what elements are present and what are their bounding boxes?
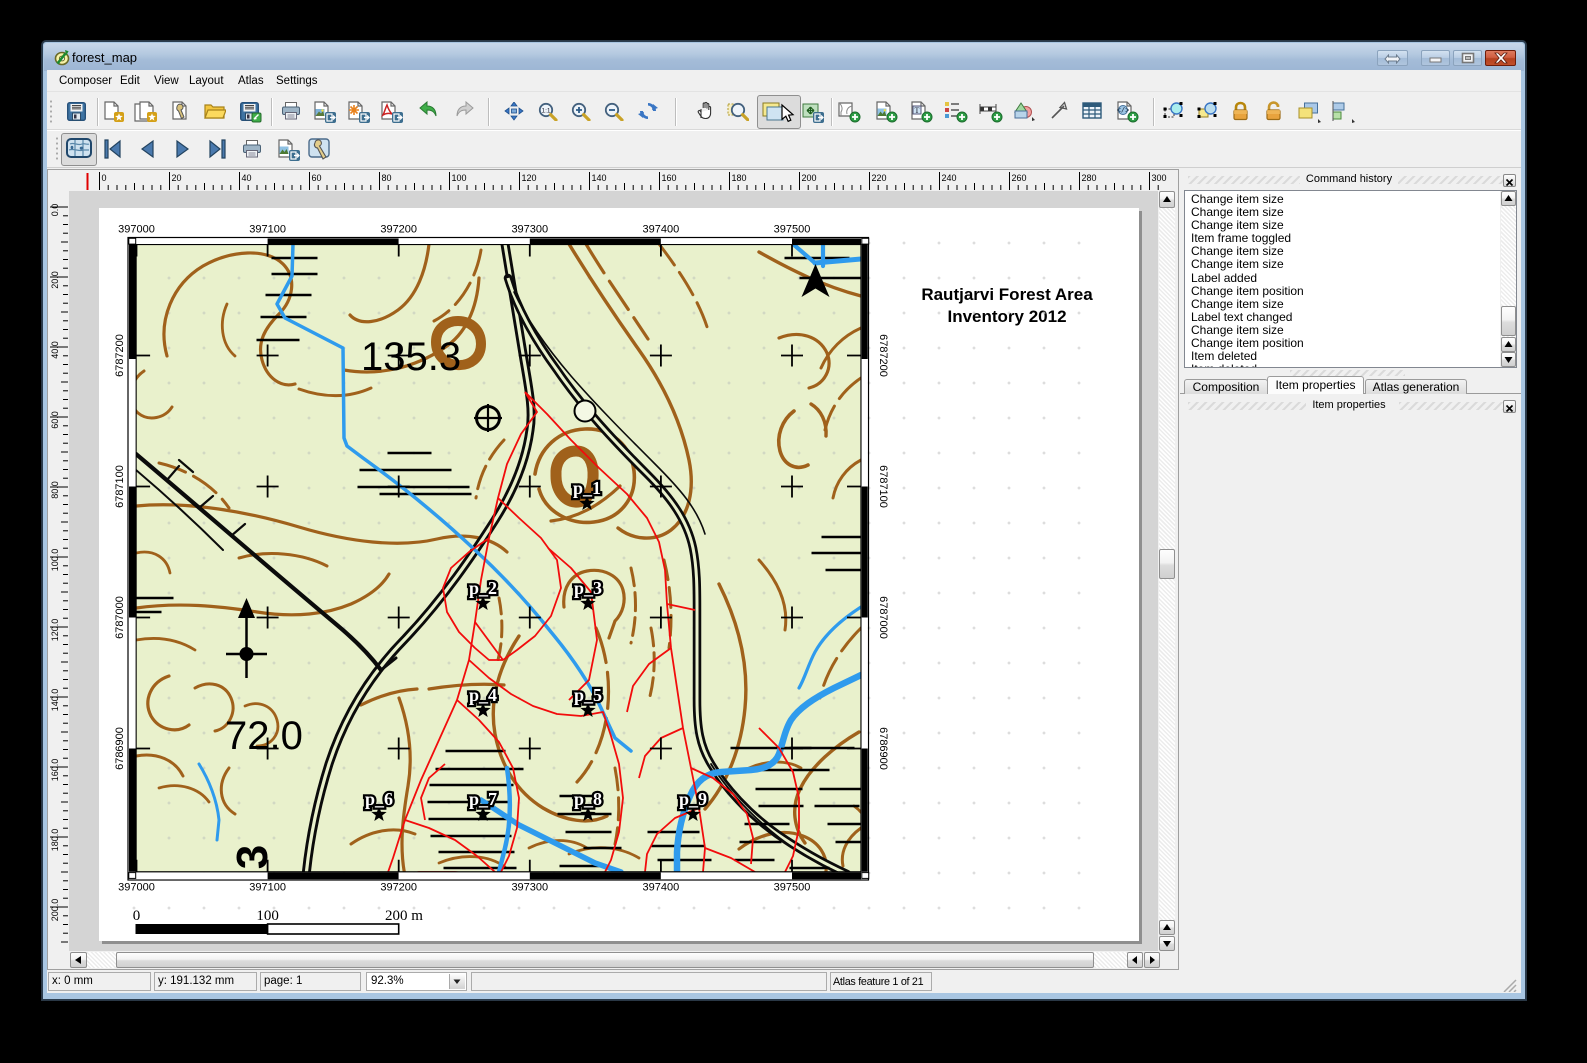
svg-text:397000: 397000	[118, 224, 155, 236]
svg-text:p_6: p_6	[365, 789, 393, 809]
svg-text:80: 80	[382, 173, 392, 183]
svg-text:280: 280	[1082, 173, 1097, 183]
svg-text:6787000: 6787000	[114, 596, 126, 639]
svg-text:397400: 397400	[643, 882, 680, 894]
svg-text:200.0: 200.0	[50, 899, 60, 922]
svg-text:397400: 397400	[643, 224, 680, 236]
svg-text:397200: 397200	[380, 882, 417, 894]
svg-text:40: 40	[242, 173, 252, 183]
svg-text:180.0: 180.0	[50, 829, 60, 852]
svg-text:160: 160	[662, 173, 677, 183]
svg-text:120.0: 120.0	[50, 619, 60, 642]
svg-text:60.0: 60.0	[50, 411, 60, 429]
svg-text:p_5: p_5	[574, 685, 602, 705]
svg-text:140.0: 140.0	[50, 689, 60, 712]
svg-text:397300: 397300	[511, 882, 548, 894]
svg-text:100.0: 100.0	[50, 549, 60, 572]
svg-text:T: T	[915, 106, 920, 115]
svg-text:p_1: p_1	[573, 478, 601, 498]
svg-text:</>: </>	[1117, 108, 1130, 116]
svg-text:135.3: 135.3	[361, 335, 461, 379]
svg-text:397200: 397200	[380, 224, 417, 236]
svg-text:6787100: 6787100	[877, 465, 889, 508]
svg-text:p_4: p_4	[469, 685, 497, 705]
svg-text:397000: 397000	[118, 882, 155, 894]
svg-text:p_9: p_9	[679, 789, 707, 809]
svg-text:397100: 397100	[249, 224, 286, 236]
svg-text:p_2: p_2	[469, 578, 497, 598]
svg-text:3: 3	[228, 845, 277, 869]
svg-text:p_8: p_8	[574, 789, 602, 809]
svg-text:180: 180	[732, 173, 747, 183]
svg-text:300: 300	[1152, 173, 1167, 183]
svg-text:6787100: 6787100	[114, 465, 126, 508]
svg-text:220: 220	[872, 173, 887, 183]
svg-text:20: 20	[172, 173, 182, 183]
svg-text:p_3: p_3	[574, 578, 602, 598]
svg-text:397500: 397500	[774, 882, 811, 894]
svg-text:20.0: 20.0	[50, 271, 60, 289]
svg-text:0: 0	[133, 908, 141, 924]
svg-text:6786900: 6786900	[114, 727, 126, 770]
svg-text:397500: 397500	[774, 224, 811, 236]
svg-text:120: 120	[522, 173, 537, 183]
svg-text:140: 140	[592, 173, 607, 183]
svg-text:200: 200	[802, 173, 817, 183]
svg-text:397100: 397100	[249, 882, 286, 894]
svg-text:40.0: 40.0	[50, 341, 60, 359]
svg-text:72.0: 72.0	[225, 714, 303, 758]
svg-text:260: 260	[1012, 173, 1027, 183]
svg-text:0: 0	[102, 173, 107, 183]
svg-text:6787000: 6787000	[877, 596, 889, 639]
svg-text:240: 240	[942, 173, 957, 183]
svg-text:80.0: 80.0	[50, 481, 60, 499]
svg-text:6787200: 6787200	[114, 334, 126, 377]
svg-text:0.0: 0.0	[50, 204, 60, 217]
svg-text:160.0: 160.0	[50, 759, 60, 782]
svg-text:6787200: 6787200	[877, 334, 889, 377]
svg-text:397300: 397300	[511, 224, 548, 236]
svg-text:60: 60	[312, 173, 322, 183]
svg-text:200 m: 200 m	[385, 908, 423, 924]
svg-text:100: 100	[256, 908, 279, 924]
svg-text:p_7: p_7	[469, 789, 497, 809]
svg-text:6786900: 6786900	[877, 727, 889, 770]
svg-text:100: 100	[452, 173, 467, 183]
svg-text:1:1: 1:1	[541, 108, 550, 115]
